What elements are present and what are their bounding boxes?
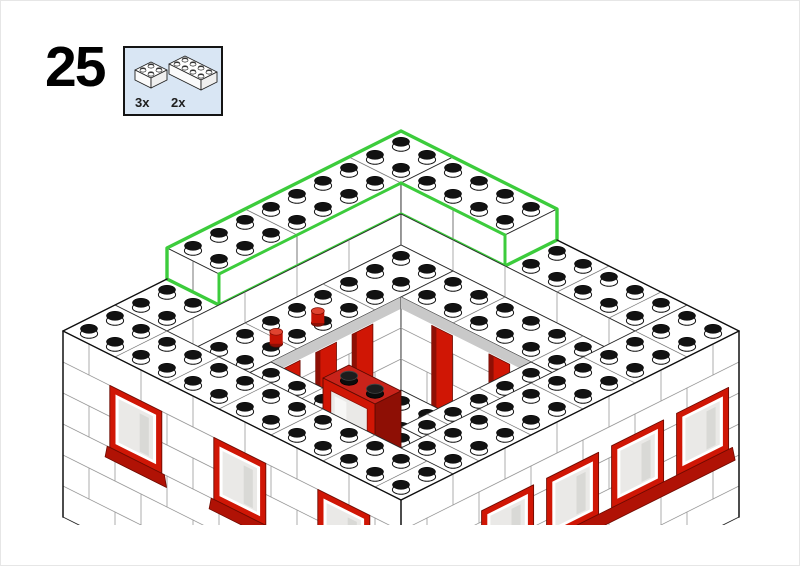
building-isometric-illustration	[1, 1, 800, 566]
instruction-page: 25 3x 2x	[0, 0, 800, 566]
